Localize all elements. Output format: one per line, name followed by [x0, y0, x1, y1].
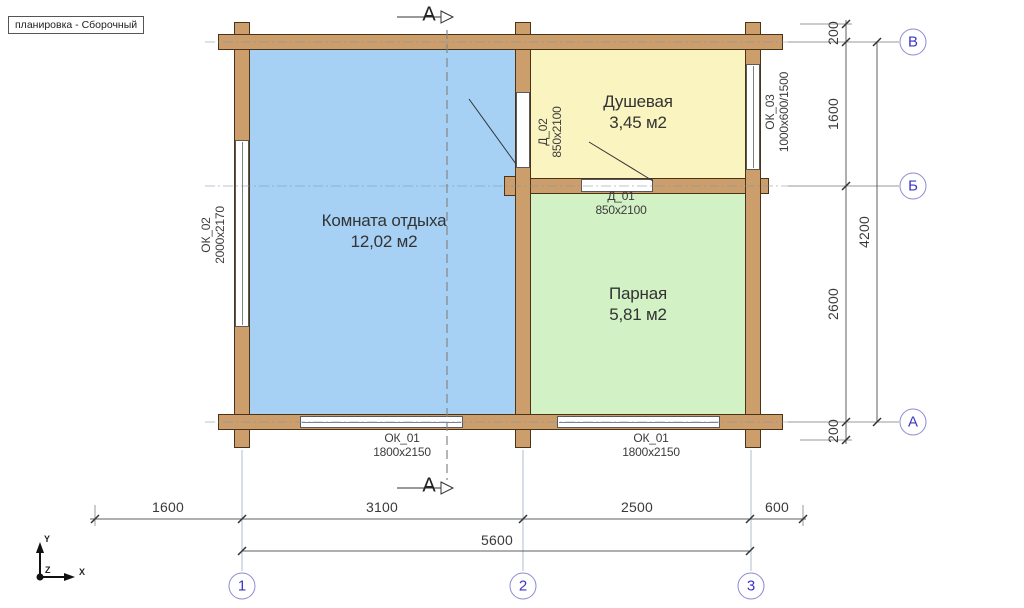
- room-area: 3,45 м2: [603, 112, 673, 133]
- dim-right-200-top: 200: [825, 21, 841, 45]
- window-label-ok01-left: ОК_01 1800х2150: [373, 432, 431, 460]
- door-label-d02: Д_02 850х2100: [537, 106, 565, 157]
- axis-bubble-row-b: Б: [900, 173, 927, 200]
- axis-bubble-col-3: 3: [738, 573, 765, 600]
- room-name: Комната отдыха: [322, 210, 447, 231]
- axis-number: 2: [519, 578, 527, 595]
- opening-size: 1800х2150: [373, 446, 431, 460]
- dim-bottom-600: 600: [765, 499, 789, 515]
- opening-name: ОК_02: [200, 206, 214, 264]
- dim-right-2600: 2600: [825, 288, 841, 320]
- opening-name: Д_01: [595, 190, 646, 204]
- axis-bubble-col-2: 2: [510, 573, 537, 600]
- opening-name: Д_02: [537, 106, 551, 157]
- dim-bottom-3100: 3100: [366, 499, 398, 515]
- axis-bubble-row-v: В: [900, 29, 927, 56]
- window-label-ok03: ОК_03 1000х600/1500: [764, 72, 792, 152]
- axis-letter: А: [908, 414, 918, 431]
- opening-size: 1000х600/1500: [778, 72, 792, 152]
- room-name: Душевая: [603, 91, 673, 112]
- dim-bottom-1600: 1600: [152, 499, 184, 515]
- dim-right-1600: 1600: [825, 98, 841, 130]
- section-marker-top: А: [422, 4, 435, 27]
- axis-letter: В: [908, 34, 918, 51]
- dim-right-total-4200: 4200: [856, 216, 872, 248]
- axis-bubble-row-a: А: [900, 409, 927, 436]
- opening-size: 2000х2170: [214, 206, 228, 264]
- dim-bottom-2500: 2500: [621, 499, 653, 515]
- window-label-ok02: ОК_02 2000х2170: [200, 206, 228, 264]
- opening-name: ОК_01: [373, 432, 431, 446]
- opening-size: 850х2100: [595, 204, 646, 218]
- room-area: 5,81 м2: [609, 304, 667, 325]
- axis-letter: Б: [908, 178, 918, 195]
- ucs-x-label: X: [79, 567, 85, 577]
- ucs-y-label: Y: [44, 534, 50, 544]
- room-label-steam: Парная 5,81 м2: [609, 283, 667, 326]
- room-area: 12,02 м2: [322, 231, 447, 252]
- view-title-label: планировка - Сборочный: [8, 16, 144, 34]
- room-label-shower: Душевая 3,45 м2: [603, 91, 673, 134]
- door-label-d01: Д_01 850х2100: [595, 190, 646, 218]
- opening-size: 850х2100: [551, 106, 565, 157]
- drawing-lines: [0, 0, 1024, 608]
- opening-size: 1800х2150: [622, 446, 680, 460]
- section-marker-bottom: А: [422, 475, 435, 498]
- ucs-z-label: Z: [45, 565, 51, 575]
- window-label-ok01-right: ОК_01 1800х2150: [622, 432, 680, 460]
- axis-bubble-col-1: 1: [229, 573, 256, 600]
- axis-number: 1: [238, 578, 246, 595]
- dim-bottom-total-5600: 5600: [481, 532, 513, 548]
- ucs-icon: [40, 551, 65, 577]
- opening-name: ОК_03: [764, 72, 778, 152]
- opening-name: ОК_01: [622, 432, 680, 446]
- room-label-rest: Комната отдыха 12,02 м2: [322, 210, 447, 253]
- room-name: Парная: [609, 283, 667, 304]
- dim-right-200-bottom: 200: [825, 419, 841, 443]
- floor-plan-canvas: планировка - Сборочный Комната отдыха 12…: [0, 0, 1024, 608]
- axis-number: 3: [747, 578, 755, 595]
